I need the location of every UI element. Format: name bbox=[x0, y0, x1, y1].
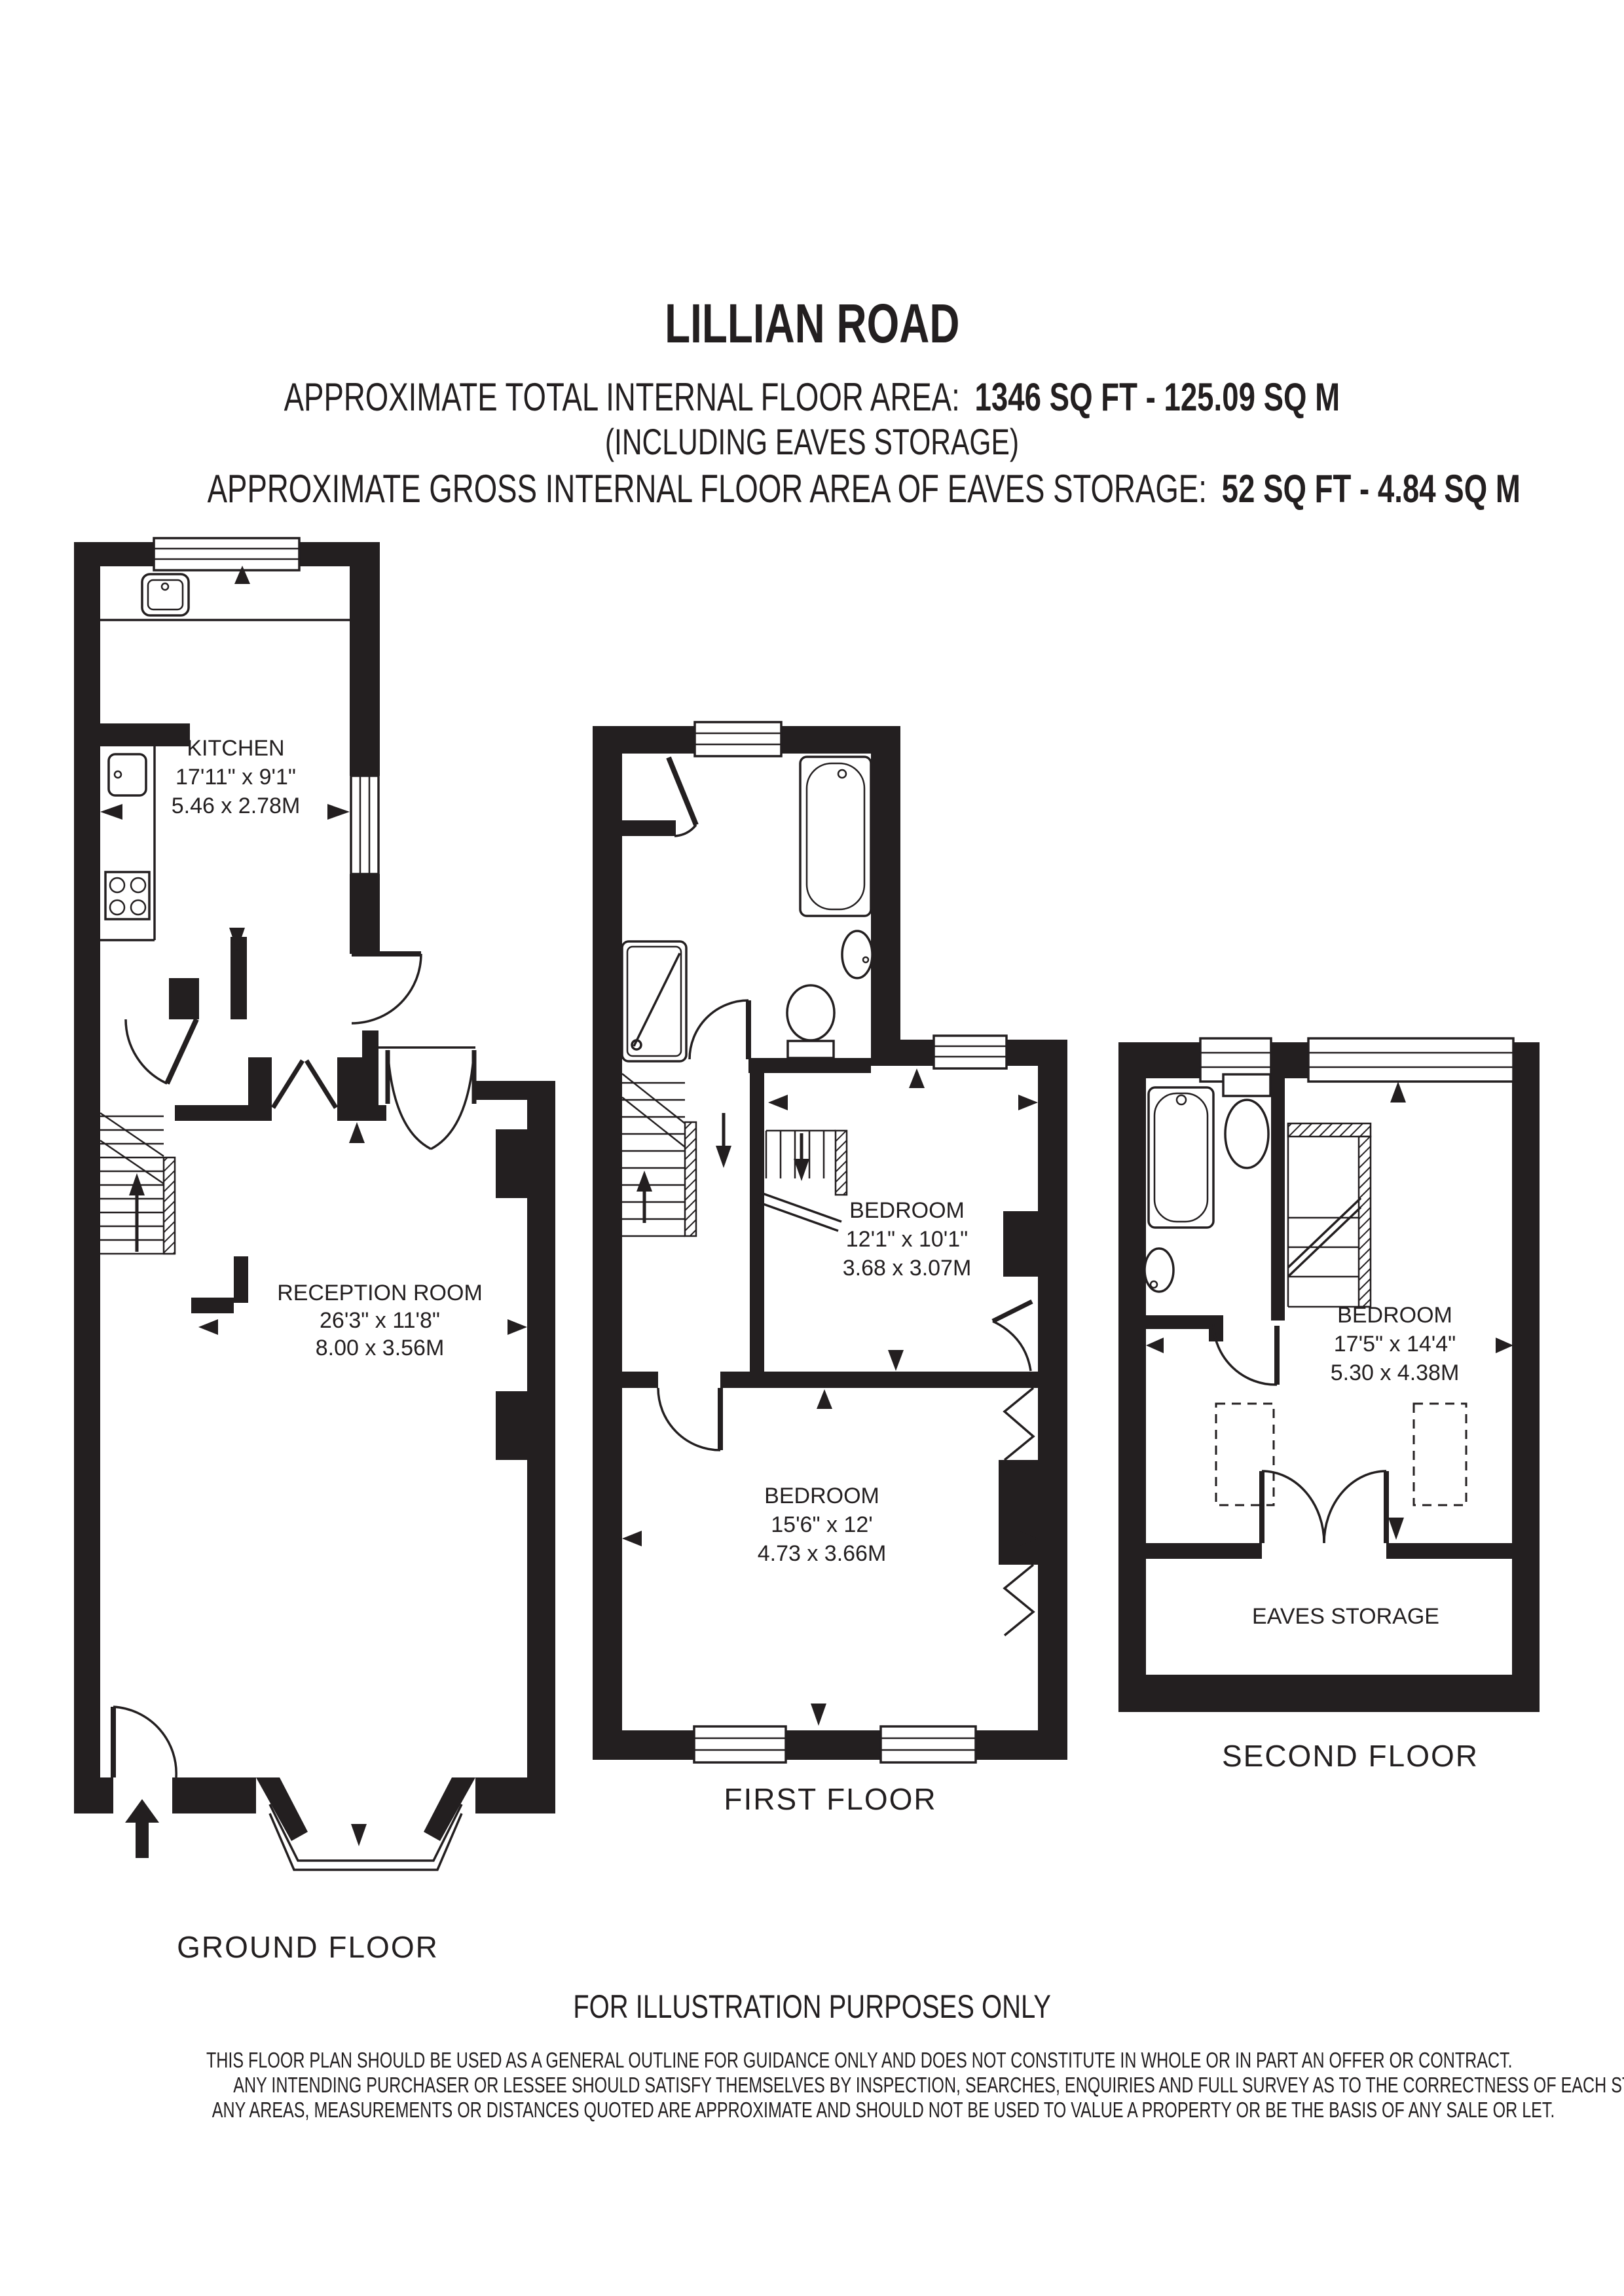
dimension-arrow-up bbox=[1390, 1082, 1406, 1102]
chimney-breast bbox=[1003, 1211, 1038, 1277]
dimension-arrow-right bbox=[327, 804, 350, 820]
stair-rail bbox=[1359, 1137, 1371, 1307]
stair-rail bbox=[164, 1157, 175, 1254]
bath-icon bbox=[1149, 1087, 1213, 1228]
dimension-arrow-down bbox=[888, 1350, 904, 1371]
dimension-arrow-down bbox=[351, 1824, 367, 1846]
kitchen-dim-imperial: 17'11" x 9'1" bbox=[175, 765, 296, 790]
bedroom-small-dim-metric: 3.68 x 3.07M bbox=[843, 1256, 972, 1281]
front-door bbox=[113, 1707, 176, 1777]
bay-window bbox=[256, 1777, 475, 1870]
bedroom-window bbox=[881, 1726, 976, 1762]
dimension-arrow-down bbox=[811, 1704, 826, 1726]
shower-icon bbox=[622, 941, 686, 1061]
reception-dim-metric: 8.00 x 3.56M bbox=[316, 1336, 445, 1360]
dimension-arrow-right bbox=[1018, 1095, 1038, 1110]
bathroom-door bbox=[690, 1000, 748, 1059]
second-bedroom-dim-imperial: 17'5" x 14'4" bbox=[1334, 1332, 1456, 1357]
illustration-notice: FOR ILLUSTRATION PURPOSES ONLY bbox=[0, 1988, 1624, 2026]
stair-rail bbox=[1288, 1123, 1371, 1137]
wardrobe-folding-door bbox=[1005, 1565, 1033, 1635]
dimension-arrow-right bbox=[507, 1319, 527, 1335]
dimension-arrow-left bbox=[622, 1531, 642, 1546]
stairs-up-arrow bbox=[637, 1171, 652, 1192]
ground-floor-label: GROUND FLOOR bbox=[177, 1930, 439, 1964]
hob-icon bbox=[105, 872, 149, 919]
basin-icon bbox=[1145, 1248, 1173, 1292]
dimension-arrow-up bbox=[909, 1068, 925, 1088]
entrance-arrow bbox=[125, 1799, 159, 1858]
stairs-down-arrow bbox=[794, 1159, 809, 1181]
bedroom-large-dim-metric: 4.73 x 3.66M bbox=[758, 1541, 887, 1566]
wardrobe-folding-door bbox=[1005, 1388, 1033, 1460]
cupboard-door bbox=[993, 1302, 1032, 1371]
reception-dim-imperial: 26'3" x 11'8" bbox=[320, 1308, 440, 1333]
french-doors bbox=[378, 1048, 475, 1149]
eaves-storage-label: EAVES STORAGE bbox=[1252, 1604, 1439, 1629]
eaves-double-doors bbox=[1262, 1471, 1386, 1543]
kitchen-window bbox=[154, 538, 299, 570]
second-window bbox=[1308, 1038, 1513, 1082]
ground-floor-plan: KITCHEN 17'11" x 9'1" 5.46 x 2.78M RECEP… bbox=[74, 538, 555, 1964]
second-floor-plan: BEDROOM 17'5" x 14'4" 5.30 x 4.38M EAVES… bbox=[1118, 1038, 1540, 1773]
utility-sink-icon bbox=[109, 754, 146, 795]
first-staircase bbox=[622, 1074, 847, 1236]
disclaimer-line-2: ANY INTENDING PURCHASER OR LESSEE SHOULD… bbox=[0, 2073, 1624, 2098]
dimension-arrow-right bbox=[1496, 1338, 1513, 1353]
first-floor-plan: BEDROOM 12'1" x 10'1" 3.68 x 3.07M BEDRO… bbox=[593, 722, 1067, 1816]
dimension-arrow-left bbox=[768, 1095, 788, 1110]
second-floor-label: SECOND FLOOR bbox=[1222, 1739, 1479, 1773]
disclaimer-line-1: THIS FLOOR PLAN SHOULD BE USED AS A GENE… bbox=[0, 2048, 1624, 2073]
first-floor-label: FIRST FLOOR bbox=[724, 1782, 936, 1816]
bedroom-door bbox=[658, 1388, 720, 1450]
toilet-icon bbox=[787, 985, 834, 1058]
reception-name: RECEPTION ROOM bbox=[277, 1281, 483, 1305]
bedroom-large-dim-imperial: 15'6" x 12' bbox=[771, 1512, 873, 1537]
bedroom-window bbox=[694, 1726, 786, 1762]
basin-icon bbox=[842, 931, 872, 978]
dimension-arrow-left bbox=[100, 804, 122, 820]
landing-window bbox=[695, 722, 781, 756]
toilet-icon bbox=[1223, 1074, 1270, 1168]
kitchen-side-window bbox=[351, 776, 378, 874]
dimension-arrow-up bbox=[349, 1122, 365, 1143]
eaves-hatch-outline bbox=[1216, 1404, 1274, 1505]
chimney-breast bbox=[496, 1391, 527, 1460]
stair-rail bbox=[836, 1131, 847, 1195]
chimney-breast bbox=[999, 1460, 1038, 1565]
second-staircase bbox=[1288, 1123, 1371, 1307]
dimension-arrow-down bbox=[1388, 1518, 1404, 1540]
hall-door bbox=[126, 1019, 196, 1084]
kitchen-name: KITCHEN bbox=[187, 736, 284, 761]
bedroom-large-name: BEDROOM bbox=[764, 1484, 879, 1508]
kitchen-door bbox=[352, 954, 421, 1023]
bedroom-small-dim-imperial: 12'1" x 10'1" bbox=[846, 1227, 968, 1252]
ground-staircase bbox=[100, 1113, 175, 1254]
chimney-breast bbox=[496, 1129, 527, 1198]
ground-walls bbox=[74, 542, 555, 1813]
floorplan-drawing: KITCHEN 17'11" x 9'1" 5.46 x 2.78M RECEP… bbox=[0, 0, 1624, 2296]
folding-doors bbox=[273, 1061, 336, 1108]
disclaimer-line-3: ANY AREAS, MEASUREMENTS OR DISTANCES QUO… bbox=[0, 2098, 1624, 2123]
stairs-down-arrow bbox=[716, 1146, 731, 1168]
bedroom-small-name: BEDROOM bbox=[849, 1198, 965, 1223]
second-bedroom-name: BEDROOM bbox=[1337, 1303, 1452, 1328]
dimension-arrow-up bbox=[817, 1389, 832, 1409]
floorplan-page: LILLIAN ROAD APPROXIMATE TOTAL INTERNAL … bbox=[0, 0, 1624, 2296]
stair-rail bbox=[685, 1122, 696, 1236]
eaves-hatch-outline bbox=[1414, 1404, 1466, 1505]
kitchen-dim-metric: 5.46 x 2.78M bbox=[172, 793, 301, 818]
dimension-arrow-left bbox=[1146, 1338, 1164, 1353]
kitchen-sink-icon bbox=[142, 574, 189, 615]
dimension-arrow-left bbox=[198, 1319, 218, 1335]
bath-icon bbox=[800, 757, 871, 916]
bedroom-window bbox=[934, 1036, 1006, 1068]
second-bedroom-dim-metric: 5.30 x 4.38M bbox=[1331, 1360, 1460, 1385]
